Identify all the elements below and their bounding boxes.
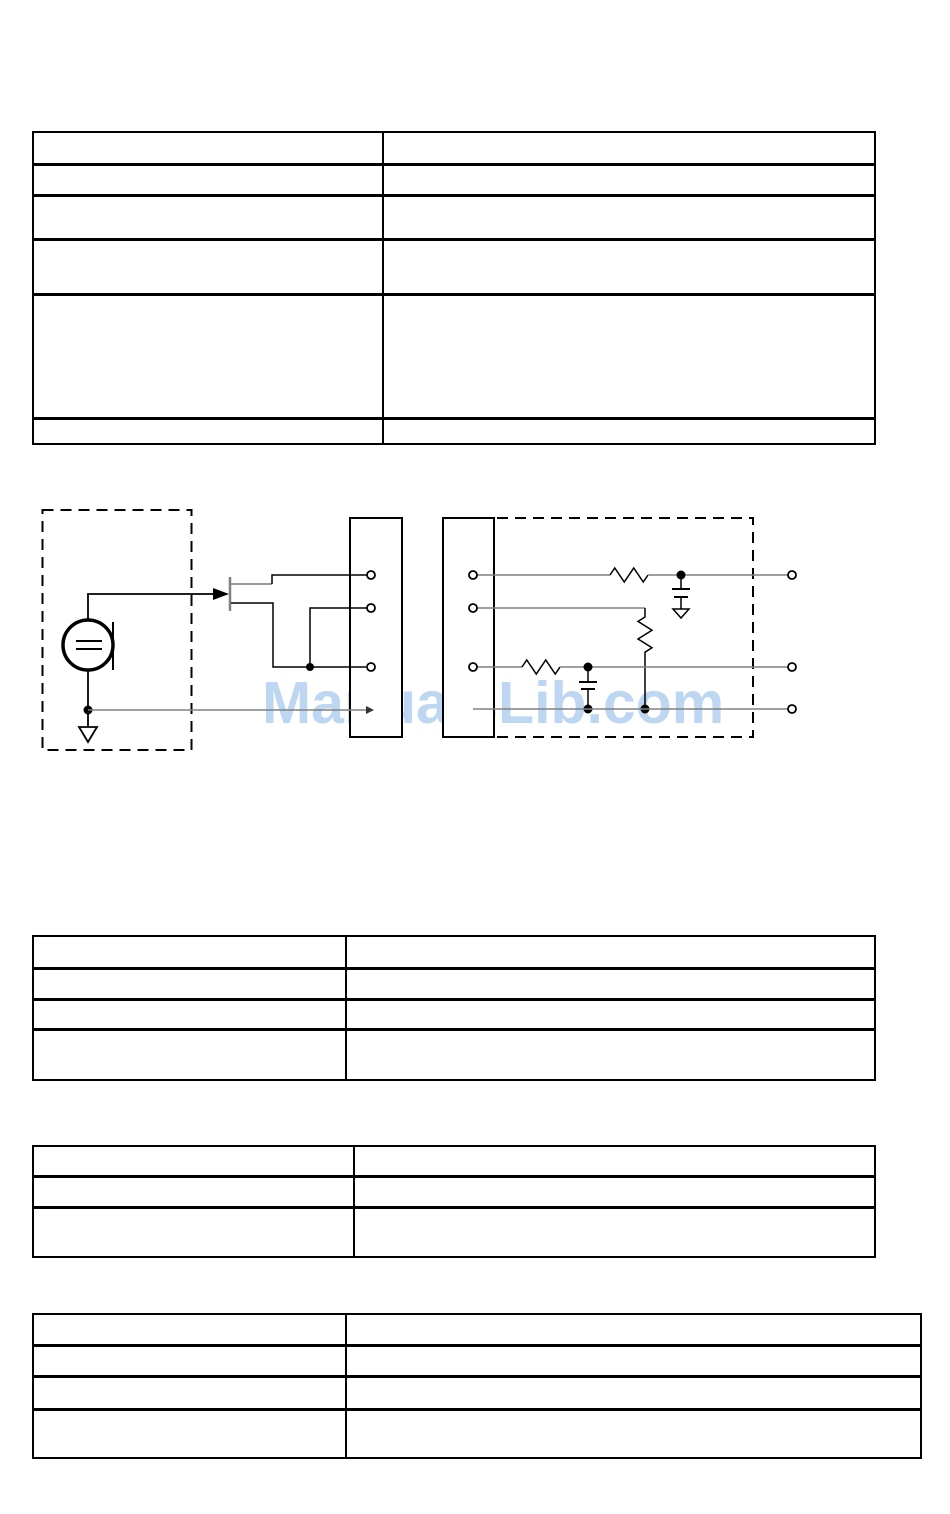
terminal-circle bbox=[469, 663, 477, 671]
table-cell bbox=[34, 197, 384, 238]
table-cell bbox=[34, 1147, 355, 1175]
table-cell bbox=[384, 241, 874, 293]
table-cell bbox=[384, 197, 874, 238]
table-row bbox=[34, 937, 874, 967]
table-cell bbox=[34, 937, 347, 967]
table-cell bbox=[347, 1347, 920, 1375]
table-row bbox=[34, 1206, 874, 1256]
table-cell bbox=[347, 1315, 920, 1344]
table-row bbox=[34, 1147, 874, 1175]
resistor-top bbox=[610, 568, 648, 582]
table-cell bbox=[347, 970, 874, 998]
table-row bbox=[34, 238, 874, 293]
ground-symbol bbox=[79, 727, 97, 742]
jfet-gate-arrow bbox=[213, 588, 229, 600]
table-cell bbox=[34, 241, 384, 293]
table-cell bbox=[384, 420, 874, 443]
table-cell bbox=[347, 1411, 920, 1457]
table-cell bbox=[355, 1209, 874, 1256]
resistor-lower bbox=[522, 660, 560, 674]
electret-capsule-circle bbox=[63, 620, 113, 670]
source-wire bbox=[231, 603, 366, 667]
table-cell bbox=[34, 1411, 347, 1457]
table-cell bbox=[34, 1031, 347, 1079]
table-row bbox=[34, 194, 874, 238]
spec-table-3 bbox=[32, 1145, 876, 1258]
terminal-circle bbox=[469, 571, 477, 579]
table-cell bbox=[34, 970, 347, 998]
table-row bbox=[34, 1028, 874, 1079]
terminal-circle bbox=[367, 604, 375, 612]
junction-dot bbox=[306, 663, 314, 671]
table-cell bbox=[384, 296, 874, 417]
table-row bbox=[34, 1175, 874, 1206]
table-cell bbox=[384, 133, 874, 163]
table-row bbox=[34, 967, 874, 998]
table-cell bbox=[34, 296, 384, 417]
table-cell bbox=[34, 1209, 355, 1256]
connector-left-box bbox=[350, 518, 402, 737]
table-cell bbox=[34, 1315, 347, 1344]
terminal-circle bbox=[367, 571, 375, 579]
terminal-circle bbox=[788, 705, 796, 713]
table-cell bbox=[34, 1178, 355, 1206]
table-cell bbox=[34, 166, 384, 194]
table-cell bbox=[34, 1347, 347, 1375]
terminal-circle bbox=[469, 604, 477, 612]
connector-right-box bbox=[443, 518, 494, 737]
spec-table-1 bbox=[32, 131, 876, 445]
terminal-circle bbox=[788, 663, 796, 671]
terminal-circle bbox=[788, 571, 796, 579]
terminal-circle bbox=[367, 663, 375, 671]
document-page: ManualsLib.com bbox=[0, 0, 950, 1514]
capacitor-top bbox=[672, 589, 690, 597]
mic-capsule-dashed-box bbox=[43, 510, 192, 750]
table-cell bbox=[34, 1001, 347, 1028]
gate-wire bbox=[88, 594, 213, 620]
table-cell bbox=[347, 1378, 920, 1408]
table-cell bbox=[355, 1178, 874, 1206]
table-cell bbox=[34, 420, 384, 443]
table-cell bbox=[347, 1031, 874, 1079]
table-cell bbox=[347, 1001, 874, 1028]
capacitor-lower bbox=[579, 682, 597, 689]
table-row bbox=[34, 133, 874, 163]
table-row bbox=[34, 1375, 920, 1408]
table-row bbox=[34, 1408, 920, 1457]
table-cell bbox=[384, 166, 874, 194]
table-cell bbox=[355, 1147, 874, 1175]
spec-table-2 bbox=[32, 935, 876, 1081]
resistor-shunt-vertical bbox=[638, 608, 652, 709]
circuit-diagram bbox=[0, 490, 950, 780]
capsule-capacitor-plates bbox=[76, 641, 102, 649]
table-row bbox=[34, 1315, 920, 1344]
table-cell bbox=[34, 1378, 347, 1408]
ground-symbol bbox=[673, 609, 689, 618]
table-cell bbox=[34, 133, 384, 163]
table-row bbox=[34, 163, 874, 194]
table-cell bbox=[347, 937, 874, 967]
table-row bbox=[34, 417, 874, 443]
table-row bbox=[34, 293, 874, 417]
table-row bbox=[34, 1344, 920, 1375]
table-row bbox=[34, 998, 874, 1028]
spec-table-4 bbox=[32, 1313, 922, 1459]
